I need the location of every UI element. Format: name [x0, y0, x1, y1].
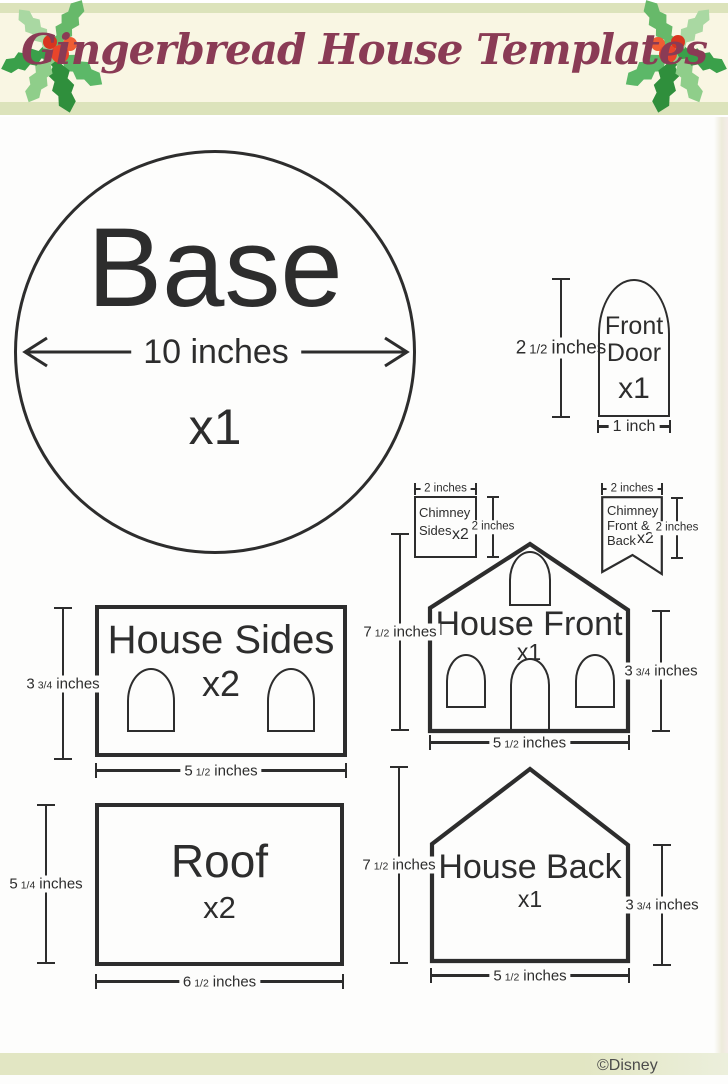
window-arch — [446, 654, 486, 708]
front-door-label-line2: Door — [598, 341, 670, 366]
chimney-front-back-height-dimension: 2 inches — [671, 497, 683, 559]
dimension-label: 2 inches — [468, 520, 519, 534]
house-sides-label: House Sides — [95, 620, 347, 660]
house-front-side-dimension: 33/4inches — [652, 610, 670, 732]
gingerbread-template-sheet: Gingerbread House Templates Base 10 inch… — [0, 0, 728, 1084]
house-back-width-dimension: 51/2inches — [430, 968, 630, 983]
dimension-label: 2 inches — [607, 482, 658, 496]
door-arch — [510, 658, 550, 729]
dimension-label: 51/2inches — [489, 734, 570, 751]
dimension-label: 71/2inches — [359, 624, 440, 641]
window-arch — [575, 654, 615, 708]
page-edge-shading — [714, 117, 728, 1053]
header-banner: Gingerbread House Templates — [0, 0, 728, 117]
front-door-label-line1: Front — [598, 314, 670, 339]
chimney-front-back-label-line1: Chimney — [607, 504, 658, 517]
front-door-height-dimension: 21/2inches — [552, 278, 570, 418]
dimension-label: 61/2inches — [179, 973, 260, 990]
dimension-label: 21/2inches — [512, 338, 611, 359]
front-door-qty-label: x1 — [598, 374, 670, 404]
copyright-label: ©Disney — [597, 1057, 658, 1075]
dimension-label: 71/2inches — [358, 857, 439, 874]
house-back-label: House Back — [430, 850, 630, 884]
house-front-width-dimension: 51/2inches — [429, 735, 630, 750]
window-arch — [267, 668, 315, 732]
chimney-front-back-width-dimension: 2 inches — [601, 483, 663, 495]
dimension-label: 2 inches — [420, 482, 471, 496]
chimney-sides-label-line2: Sides — [419, 524, 452, 537]
dimension-label: 1 inch — [609, 418, 660, 436]
dimension-label: 51/4inches — [5, 876, 86, 893]
house-back-qty-label: x1 — [430, 888, 630, 911]
roof-qty-label: x2 — [95, 892, 344, 923]
base-qty-label: x1 — [14, 402, 416, 452]
roof-width-dimension: 61/2inches — [95, 974, 344, 989]
front-door-width-dimension: 1 inch — [597, 420, 671, 433]
roof-label: Roof — [95, 838, 344, 884]
base-diameter-label: 10 inches — [131, 335, 301, 369]
dimension-label: 33/4inches — [620, 663, 701, 680]
dimension-label: 33/4inches — [621, 897, 702, 914]
base-diameter-dimension: 10 inches — [20, 334, 412, 370]
house-back-height-dimension: 71/2inches — [390, 766, 408, 964]
house-sides-height-dimension: 33/4inches — [54, 607, 72, 760]
house-front-label: House Front — [428, 607, 630, 641]
chimney-sides-width-dimension: 2 inches — [414, 483, 477, 495]
house-front-height-dimension: 71/2inches — [391, 533, 409, 731]
dimension-label: 33/4inches — [22, 675, 103, 692]
dimension-label: 51/2inches — [180, 762, 261, 779]
dimension-label: 2 inches — [652, 521, 703, 535]
dimension-label: 51/2inches — [489, 967, 570, 984]
window-arch — [127, 668, 175, 732]
chimney-sides-label-line1: Chimney — [419, 506, 470, 519]
house-back-side-dimension: 33/4inches — [653, 844, 671, 966]
window-arch — [509, 551, 551, 606]
page-title: Gingerbread House Templates — [0, 25, 728, 74]
roof-height-dimension: 51/4inches — [37, 804, 55, 964]
base-label: Base — [14, 212, 416, 324]
house-sides-width-dimension: 51/2inches — [95, 763, 347, 778]
